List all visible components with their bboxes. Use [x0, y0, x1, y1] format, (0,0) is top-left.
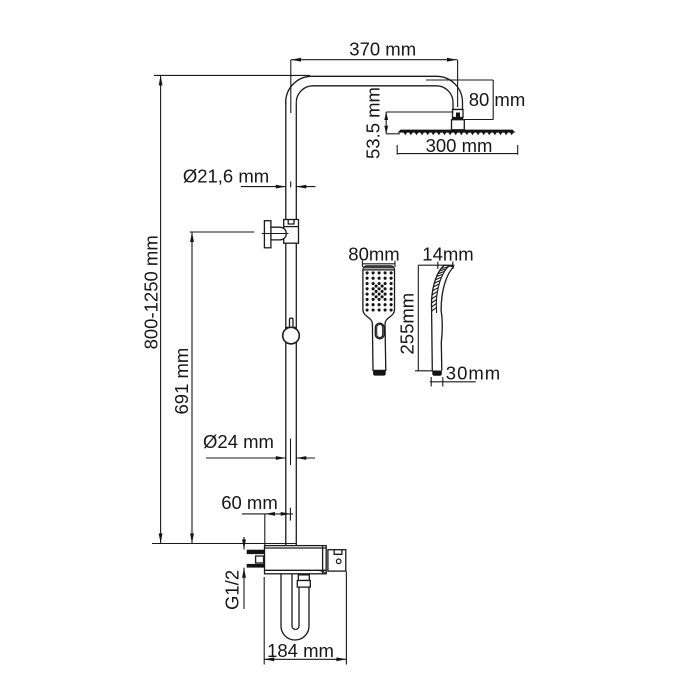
svg-text:255mm: 255mm [397, 293, 418, 355]
svg-text:300 mm: 300 mm [426, 135, 493, 156]
svg-text:80 mm: 80 mm [469, 89, 526, 110]
svg-text:G1/2: G1/2 [222, 570, 243, 610]
svg-text:184 mm: 184 mm [267, 640, 334, 661]
svg-text:80mm: 80mm [348, 243, 399, 264]
svg-text:60 mm: 60 mm [221, 492, 278, 513]
svg-text:Ø24 mm: Ø24 mm [203, 431, 274, 452]
svg-text:Ø21,6 mm: Ø21,6 mm [183, 166, 269, 187]
svg-text:800-1250 mm: 800-1250 mm [141, 235, 162, 349]
svg-text:53.5 mm: 53.5 mm [363, 87, 384, 159]
svg-text:14mm: 14mm [422, 243, 473, 264]
svg-text:691 mm: 691 mm [171, 348, 192, 415]
svg-text:30mm: 30mm [446, 363, 501, 384]
svg-text:370 mm: 370 mm [349, 39, 416, 60]
